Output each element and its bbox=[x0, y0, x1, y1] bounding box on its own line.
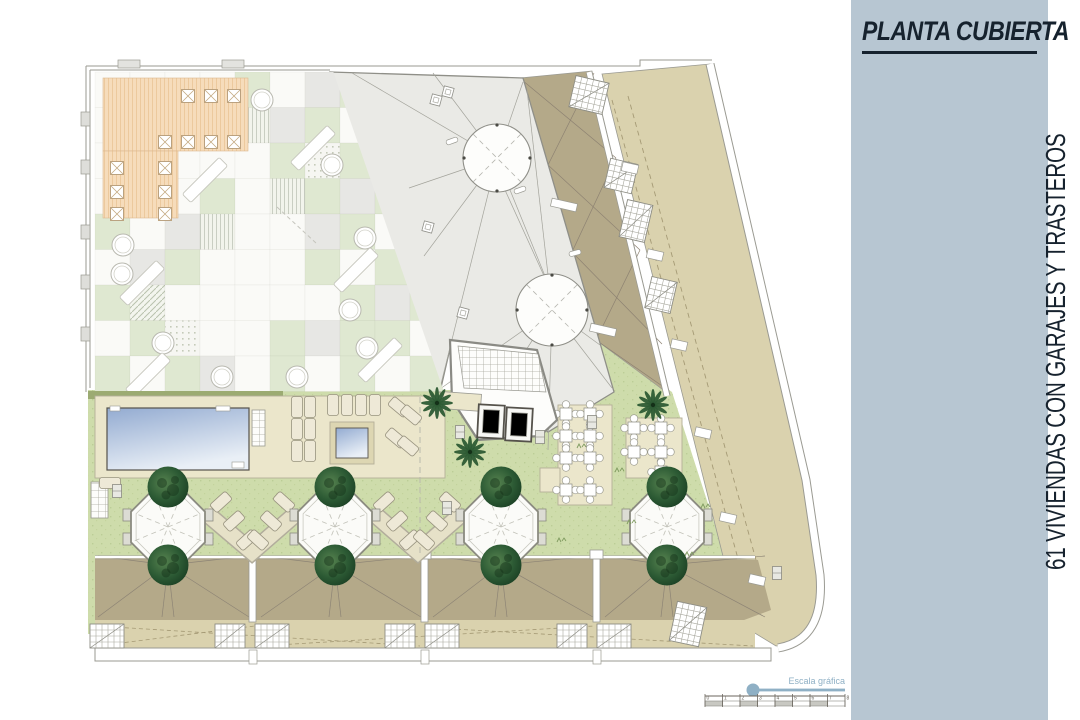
pool-deck-part bbox=[110, 406, 120, 411]
chair bbox=[648, 424, 656, 432]
terrace-tile bbox=[340, 179, 375, 215]
terrace-tile bbox=[375, 285, 410, 321]
pool-deck-part bbox=[232, 462, 244, 468]
tree-part bbox=[338, 554, 346, 562]
facade-mark bbox=[81, 112, 90, 126]
terrace-tile bbox=[305, 285, 340, 321]
chair bbox=[577, 454, 585, 462]
stair-hatch-box bbox=[425, 624, 459, 648]
terrace-tile bbox=[95, 321, 130, 357]
planter bbox=[211, 366, 233, 388]
bottom-roof-row-part bbox=[421, 650, 429, 664]
chair bbox=[586, 477, 594, 485]
pergola-post bbox=[290, 533, 298, 545]
stair-hatch-box bbox=[255, 624, 289, 648]
bottom-roof-row-part bbox=[249, 650, 257, 664]
facade-mark bbox=[118, 60, 140, 68]
tree-part bbox=[670, 554, 678, 562]
chair bbox=[553, 486, 561, 494]
pergola-post bbox=[372, 509, 380, 521]
roof-badge-part bbox=[457, 307, 469, 319]
terrace-tile bbox=[200, 214, 235, 250]
terrace-table bbox=[159, 208, 172, 221]
planter bbox=[354, 227, 376, 249]
ruler-segment bbox=[793, 701, 811, 706]
facade-mark bbox=[81, 225, 90, 239]
planter bbox=[112, 234, 134, 256]
terrace-tile bbox=[270, 72, 305, 108]
roof-badge bbox=[430, 94, 442, 106]
chair bbox=[648, 448, 656, 456]
sun-lounger bbox=[305, 419, 316, 440]
skylight-circle-part bbox=[585, 308, 588, 311]
tree-part bbox=[157, 478, 167, 488]
ruler-number: 7 bbox=[829, 696, 832, 702]
terrace-tile bbox=[270, 108, 305, 144]
ruler-segment bbox=[740, 701, 758, 706]
skylight-circle-part bbox=[528, 156, 531, 159]
orange-deck bbox=[103, 78, 248, 151]
chair bbox=[562, 401, 570, 409]
terrace-tile bbox=[305, 179, 340, 215]
tree-part bbox=[162, 491, 171, 500]
pergola-post bbox=[704, 533, 712, 545]
pergola-post bbox=[538, 533, 546, 545]
tree-part bbox=[171, 554, 179, 562]
sun-lounger bbox=[305, 397, 316, 418]
terrace-tile bbox=[235, 179, 270, 215]
ruler-segment bbox=[758, 701, 776, 706]
chair bbox=[577, 432, 585, 440]
terrace-tile bbox=[235, 321, 270, 357]
roof-vent bbox=[588, 416, 597, 429]
terrace-tile bbox=[200, 250, 235, 286]
chair bbox=[586, 445, 594, 453]
skylight-circle bbox=[462, 123, 531, 192]
facade-mark bbox=[222, 60, 244, 68]
facade-mark bbox=[81, 327, 90, 341]
skylight-circle-part bbox=[495, 189, 498, 192]
tree bbox=[647, 545, 688, 586]
pool-stair bbox=[252, 410, 265, 446]
pergola-post bbox=[123, 533, 131, 545]
chair bbox=[621, 424, 629, 432]
terrace-tile bbox=[270, 321, 305, 357]
skylight-circle-part bbox=[515, 308, 518, 311]
pergola-post bbox=[538, 509, 546, 521]
sun-lounger bbox=[370, 395, 381, 416]
tree-part bbox=[656, 556, 666, 566]
skylight-circle-part bbox=[495, 123, 498, 126]
roof-vent bbox=[443, 502, 452, 515]
tree bbox=[647, 467, 688, 508]
terrace-tile bbox=[165, 250, 200, 286]
ruler-segment bbox=[723, 701, 741, 706]
terrace-tile bbox=[305, 321, 340, 357]
terrace-table bbox=[111, 186, 124, 199]
terrace-table bbox=[111, 162, 124, 175]
terrace-tile bbox=[235, 285, 270, 321]
roof-vent bbox=[456, 426, 465, 439]
chair bbox=[657, 439, 665, 447]
terrace-table bbox=[111, 208, 124, 221]
patio-table-part bbox=[560, 452, 572, 464]
tree bbox=[148, 467, 189, 508]
chair bbox=[562, 423, 570, 431]
stair-hatch-box bbox=[215, 624, 245, 648]
tree-part bbox=[661, 569, 670, 578]
terrace-table bbox=[205, 90, 218, 103]
scale-ruler: 012345678 bbox=[705, 694, 850, 707]
patio-table-part bbox=[560, 430, 572, 442]
tree bbox=[315, 467, 356, 508]
terrace-tile bbox=[200, 285, 235, 321]
chair bbox=[586, 464, 594, 472]
terrace-tile bbox=[200, 321, 235, 357]
pool-deck-part bbox=[216, 406, 230, 411]
ruler-segment bbox=[705, 701, 723, 706]
tree bbox=[148, 545, 189, 586]
bottom-edge-strip bbox=[95, 648, 771, 661]
terrace-table bbox=[159, 136, 172, 149]
roof-badge-part bbox=[422, 221, 434, 233]
pergola-post bbox=[456, 533, 464, 545]
ruler-number: 6 bbox=[812, 696, 815, 702]
roof-divider bbox=[249, 558, 256, 622]
planter bbox=[321, 154, 343, 176]
terrace-tile bbox=[95, 356, 130, 392]
chair bbox=[562, 477, 570, 485]
terrace-tile bbox=[235, 214, 270, 250]
scale-bar-label: Escala gráfica bbox=[788, 676, 845, 686]
terrace-table bbox=[182, 90, 195, 103]
planter bbox=[251, 89, 273, 111]
roof-badge bbox=[442, 86, 454, 98]
tree-part bbox=[656, 478, 666, 488]
roof-divider bbox=[593, 558, 600, 622]
pergola-post bbox=[372, 533, 380, 545]
bottom-roof-row-part bbox=[95, 558, 737, 620]
tree-part bbox=[661, 491, 670, 500]
tree bbox=[481, 545, 522, 586]
title-underline bbox=[862, 51, 1037, 54]
ruler-number: 3 bbox=[759, 696, 762, 702]
patio-table-part bbox=[628, 446, 640, 458]
roof-badge bbox=[422, 221, 434, 233]
stair-core-part bbox=[510, 413, 527, 437]
pergola-post bbox=[123, 509, 131, 521]
pergola-post bbox=[704, 509, 712, 521]
ruler-number: 2 bbox=[742, 696, 745, 702]
chair bbox=[586, 496, 594, 504]
planter bbox=[111, 263, 133, 285]
palm-tree-part bbox=[468, 450, 472, 454]
ruler-segment bbox=[828, 701, 846, 706]
pergola-post bbox=[456, 509, 464, 521]
tree-part bbox=[329, 569, 338, 578]
tree-part bbox=[504, 554, 512, 562]
tree-part bbox=[324, 478, 334, 488]
chair bbox=[630, 415, 638, 423]
tree-part bbox=[338, 476, 346, 484]
chair bbox=[596, 486, 604, 494]
patio-table-part bbox=[560, 484, 572, 496]
tree-part bbox=[670, 476, 678, 484]
stair-hatch-box bbox=[557, 624, 587, 648]
tree-part bbox=[495, 569, 504, 578]
roof-vent bbox=[773, 567, 782, 580]
chair bbox=[562, 496, 570, 504]
pergola-post bbox=[622, 509, 630, 521]
roof-badge-part bbox=[430, 94, 442, 106]
terrace-table bbox=[228, 136, 241, 149]
sun-lounger bbox=[328, 395, 339, 416]
terrace-tile bbox=[270, 214, 305, 250]
sun-lounger bbox=[342, 395, 353, 416]
stair-hatch-box bbox=[597, 624, 631, 648]
planter bbox=[152, 332, 174, 354]
tree-part bbox=[490, 556, 500, 566]
terrace-tile bbox=[235, 356, 270, 392]
terrace-table bbox=[159, 186, 172, 199]
patio-table-part bbox=[655, 446, 667, 458]
pergola-post bbox=[622, 533, 630, 545]
ruler-number: 0 bbox=[707, 696, 710, 702]
stair-core-part bbox=[482, 410, 499, 434]
tree-part bbox=[171, 476, 179, 484]
tree-part bbox=[324, 556, 334, 566]
terrace-tile bbox=[270, 179, 305, 215]
scale-bar: Escala gráfica 012345678 bbox=[705, 676, 850, 707]
title-sidebar: PLANTA CUBIERTA bbox=[851, 0, 1048, 720]
tree-part bbox=[157, 556, 167, 566]
ruler-number: 5 bbox=[794, 696, 797, 702]
terrace-table bbox=[159, 162, 172, 175]
terrace-tile bbox=[305, 72, 340, 108]
patio-table-part bbox=[655, 422, 667, 434]
project-subtitle-vertical: 61 VIVIENDAS CON GARAJES Y TRASTEROS bbox=[1040, 134, 1072, 570]
chair bbox=[596, 454, 604, 462]
roof-vent bbox=[536, 431, 545, 444]
sun-lounger bbox=[305, 441, 316, 462]
pergola-post bbox=[290, 509, 298, 521]
tree-part bbox=[490, 478, 500, 488]
pergola-post bbox=[205, 509, 213, 521]
pergola-post bbox=[205, 533, 213, 545]
facade-mark bbox=[81, 160, 90, 174]
chair bbox=[621, 448, 629, 456]
terrace-tile bbox=[305, 214, 340, 250]
patio-table-part bbox=[628, 422, 640, 434]
skylight-circle-part bbox=[462, 156, 465, 159]
sun-lounger bbox=[292, 419, 303, 440]
stair-hatch-box bbox=[604, 158, 638, 194]
skylight-circle-part bbox=[550, 273, 553, 276]
ruler-number: 8 bbox=[847, 696, 850, 702]
skylight-circle bbox=[515, 273, 588, 346]
chair bbox=[562, 464, 570, 472]
tree-part bbox=[504, 476, 512, 484]
roof-vent bbox=[113, 485, 122, 498]
chair bbox=[577, 410, 585, 418]
patio-table-part bbox=[560, 408, 572, 420]
tree bbox=[481, 467, 522, 508]
chair bbox=[577, 486, 585, 494]
scale-bar-part bbox=[759, 689, 845, 692]
ruler-segment bbox=[775, 701, 793, 706]
bottom-roof-row-part bbox=[593, 650, 601, 664]
chair bbox=[596, 432, 604, 440]
chair bbox=[667, 448, 675, 456]
terrace-table bbox=[182, 136, 195, 149]
terrace-tile bbox=[270, 285, 305, 321]
patio-table-part bbox=[584, 452, 596, 464]
facade-mark bbox=[81, 275, 90, 289]
ruler-segment bbox=[810, 701, 828, 706]
chair bbox=[640, 448, 648, 456]
tree bbox=[315, 545, 356, 586]
chair bbox=[630, 439, 638, 447]
planter bbox=[286, 366, 308, 388]
chair bbox=[630, 458, 638, 466]
stair-hatch-box bbox=[90, 624, 124, 648]
planter bbox=[356, 337, 378, 359]
chair bbox=[553, 432, 561, 440]
patio-table-part bbox=[584, 430, 596, 442]
swimming-pool bbox=[107, 408, 249, 470]
sun-lounger bbox=[356, 395, 367, 416]
plan-title: PLANTA CUBIERTA bbox=[862, 16, 1069, 47]
stair-hatch-box bbox=[385, 624, 415, 648]
terrace-tile bbox=[165, 285, 200, 321]
chair bbox=[640, 424, 648, 432]
architectural-sheet: Escala gráfica 012345678 PLANTA CUBIERTA… bbox=[0, 0, 1080, 720]
bottom-roof-row-part bbox=[590, 550, 603, 559]
terrace-table bbox=[205, 136, 218, 149]
ruler-number: 4 bbox=[777, 696, 780, 702]
chair bbox=[553, 454, 561, 462]
chair bbox=[586, 401, 594, 409]
terrace-tile bbox=[270, 250, 305, 286]
terrace-table bbox=[228, 90, 241, 103]
terrace-tile bbox=[235, 250, 270, 286]
roof-badge-part bbox=[442, 86, 454, 98]
roof-badge bbox=[457, 307, 469, 319]
palm-tree-part bbox=[435, 401, 439, 405]
pool-deck-part bbox=[336, 428, 368, 458]
ruler-number: 1 bbox=[724, 696, 727, 702]
skylight-circle-part bbox=[550, 343, 553, 346]
terrace-tile bbox=[305, 250, 340, 286]
tree-part bbox=[162, 569, 171, 578]
terrace-tile bbox=[305, 356, 340, 392]
planter bbox=[339, 299, 361, 321]
tree-part bbox=[495, 491, 504, 500]
chair bbox=[657, 459, 665, 467]
sun-lounger bbox=[292, 397, 303, 418]
sun-lounger bbox=[292, 441, 303, 462]
palm-tree-part bbox=[651, 403, 655, 407]
patio-table-part bbox=[584, 484, 596, 496]
roof-divider bbox=[421, 558, 428, 622]
chair bbox=[562, 445, 570, 453]
tree-part bbox=[329, 491, 338, 500]
stair-hatch-box bbox=[569, 76, 609, 115]
chair bbox=[667, 424, 675, 432]
